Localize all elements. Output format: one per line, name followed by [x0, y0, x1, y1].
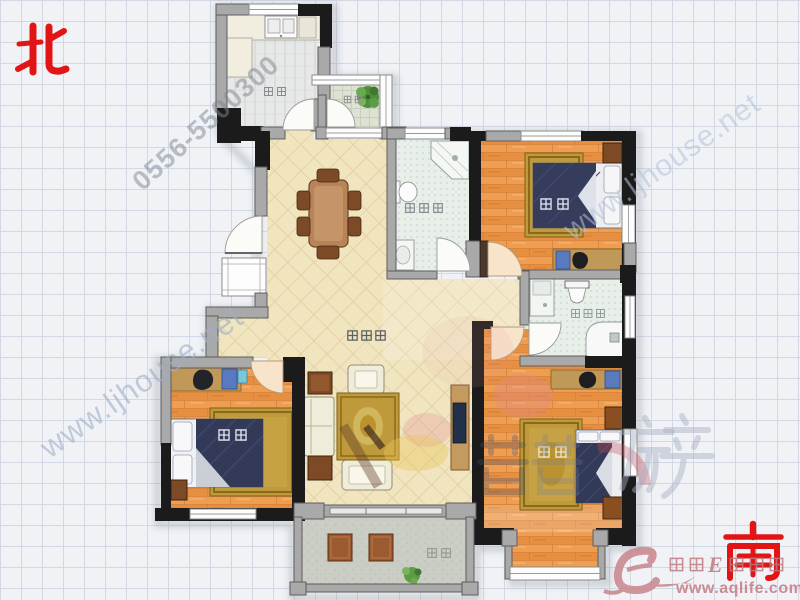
svg-text:E: E: [707, 552, 723, 577]
svg-text:www.aqlife.com: www.aqlife.com: [675, 580, 800, 597]
